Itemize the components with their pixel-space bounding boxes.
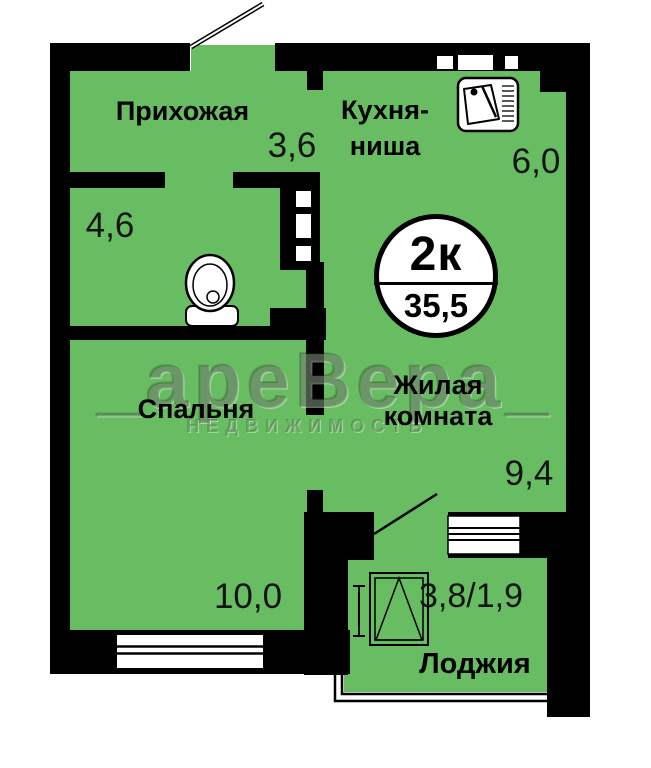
- living-loggia-window: [448, 516, 520, 554]
- room-area-living: 9,4: [499, 456, 559, 493]
- living-label-line2: комната: [373, 401, 503, 432]
- entrance-door-swing-icon: [191, 4, 263, 47]
- badge-apartment-type: 2к: [410, 231, 463, 279]
- badge-total-area: 35,5: [404, 289, 468, 322]
- room-area-loggia: 3,8/1,9: [410, 579, 532, 615]
- toilet-icon: [186, 255, 238, 326]
- room-area-bedroom: 10,0: [208, 579, 288, 616]
- room-label-living: Жилая комната: [373, 370, 503, 432]
- kitchen-sink-icon: [458, 78, 518, 131]
- floor-plan: _ареВера_ НЕДВИЖИМОСТЬ Прихожая 3,6 4,6 …: [0, 0, 651, 768]
- kitchen-label-line1: Кухня-: [325, 92, 445, 128]
- room-area-kitchen: 6,0: [506, 144, 566, 181]
- room-label-bedroom: Спальня: [126, 395, 266, 423]
- badge-divider: [374, 282, 498, 285]
- living-label-line1: Жилая: [373, 370, 503, 401]
- room-label-loggia: Лоджия: [410, 649, 540, 679]
- room-label-kitchen: Кухня- ниша: [325, 92, 445, 164]
- room-area-hallway: 3,6: [262, 128, 322, 165]
- bedroom-window: [117, 635, 263, 668]
- balcony-door-opening: [374, 512, 448, 558]
- apartment-badge: 2к 35,5: [374, 214, 498, 338]
- kitchen-label-line2: ниша: [325, 128, 445, 164]
- room-area-bathroom: 4,6: [80, 208, 140, 245]
- entrance-opening: [191, 45, 275, 71]
- room-label-hallway: Прихожая: [100, 97, 265, 125]
